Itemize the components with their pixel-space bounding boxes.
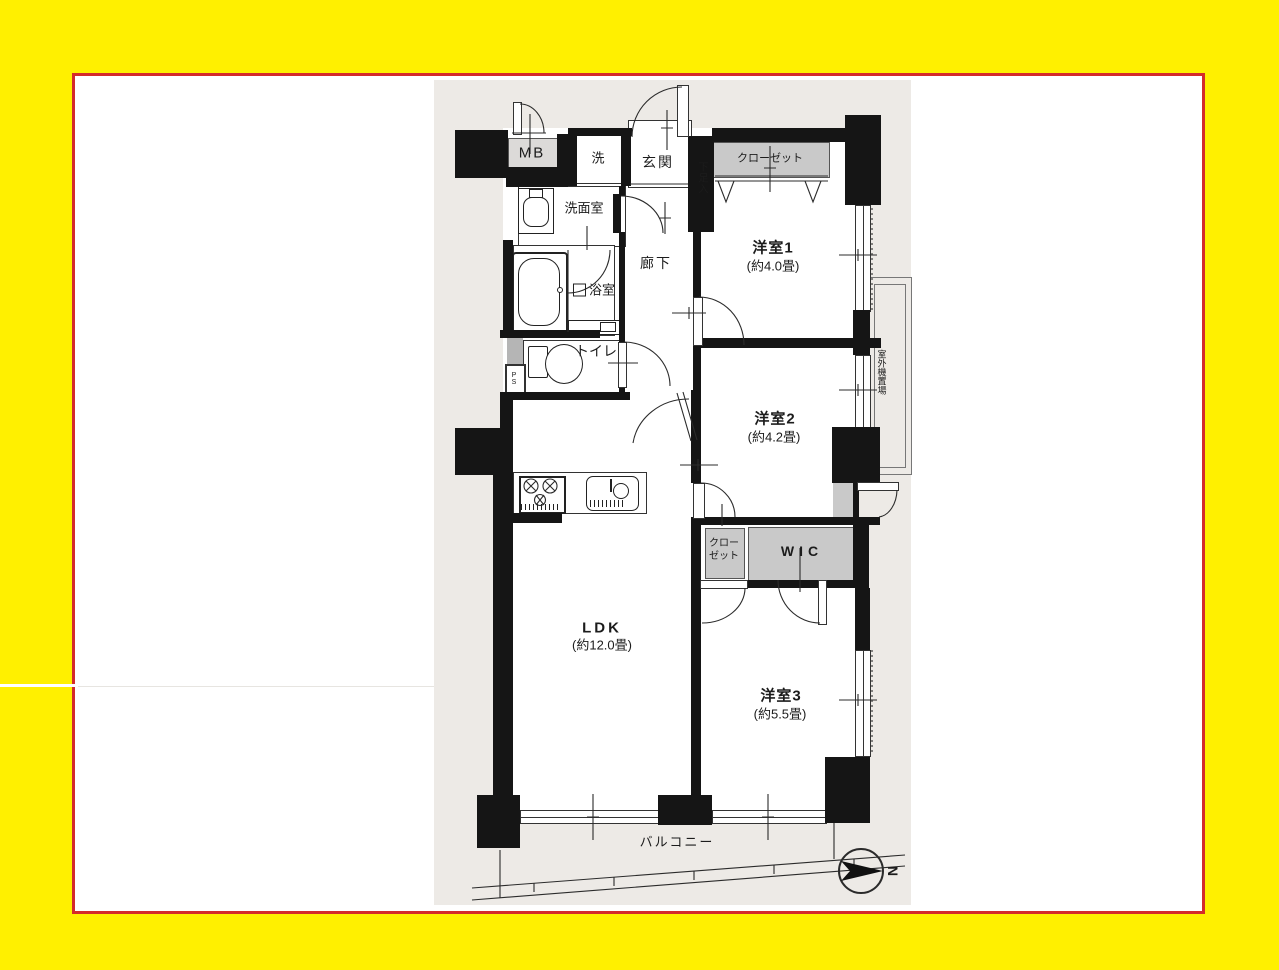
wic-door-leaf xyxy=(818,580,827,625)
toilet-label: トイレ xyxy=(575,344,617,358)
room2-label: 洋室2 xyxy=(754,412,795,427)
wall xyxy=(712,128,846,142)
sink-faucet-stem xyxy=(610,479,612,492)
closet2-label: クロー ゼット xyxy=(709,537,739,563)
wall xyxy=(691,517,701,810)
floor-plan: MB 洗 玄関 下足入 クローゼット 洋室1 (約4.0畳) 洗面室 廊下 浴室… xyxy=(434,80,911,905)
wall xyxy=(693,344,701,392)
wall xyxy=(701,517,880,525)
wall xyxy=(500,392,513,432)
toilet-door-leaf xyxy=(618,342,627,388)
closet2-line2: ゼット xyxy=(709,550,739,563)
wall xyxy=(477,795,520,848)
wall xyxy=(500,330,600,338)
room3-label: 洋室3 xyxy=(760,689,801,704)
page: MB 洗 玄関 下足入 クローゼット 洋室1 (約4.0畳) 洗面室 廊下 浴室… xyxy=(0,0,1279,970)
sink-faucet xyxy=(613,483,629,499)
bathroom-label-text: 浴室 xyxy=(589,284,615,297)
red-frame: MB 洗 玄関 下足入 クローゼット 洋室1 (約4.0畳) 洗面室 廊下 浴室… xyxy=(72,73,1205,914)
wall xyxy=(500,392,630,400)
bathroom-square-icon xyxy=(573,284,586,297)
closet2-line1: クロー xyxy=(709,537,739,550)
stray-line-gray xyxy=(78,686,434,687)
wall xyxy=(493,428,513,810)
ps-label: PS xyxy=(511,372,518,386)
wall xyxy=(745,580,869,588)
mb-door-leaf xyxy=(513,102,522,135)
bathtub-handle xyxy=(557,287,563,293)
entrance-door-leaf xyxy=(677,85,689,137)
wall xyxy=(855,588,870,650)
north-label: N xyxy=(886,866,900,876)
room1-label: 洋室1 xyxy=(752,241,793,256)
window-room3-right xyxy=(855,650,871,757)
washbasin-bowl xyxy=(523,197,549,227)
shoe-box-label: 下足入 xyxy=(696,162,706,195)
wall xyxy=(621,128,631,186)
wall xyxy=(691,390,701,483)
sink-rack xyxy=(590,500,624,507)
wall xyxy=(701,338,881,348)
compass-arrow xyxy=(841,861,883,881)
mb-label: MB xyxy=(519,146,546,161)
wall xyxy=(693,232,701,297)
wall xyxy=(832,427,880,483)
balcony-edge-ticks xyxy=(534,859,854,892)
balcony-access-arc xyxy=(879,490,897,517)
wall xyxy=(845,115,881,205)
wall xyxy=(513,513,562,523)
wall xyxy=(455,428,493,475)
washbasin-tap xyxy=(529,189,543,198)
corridor-label: 廊下 xyxy=(640,256,672,270)
stove-grill xyxy=(521,504,560,510)
washroom-label: 洗面室 xyxy=(564,202,603,215)
balcony-label: バルコニー xyxy=(640,836,715,849)
wall xyxy=(455,130,508,178)
wall xyxy=(557,134,577,186)
window-room2-right xyxy=(855,355,871,429)
room1-door-leaf xyxy=(693,297,703,346)
wall xyxy=(658,795,712,825)
wic-label: WIC xyxy=(781,544,823,558)
window-ldk-balcony xyxy=(520,810,660,824)
room3-door-leaf xyxy=(700,580,748,589)
window-room3-balcony xyxy=(712,810,827,824)
outdoor-unit-label: 室外機置場 xyxy=(877,350,886,395)
wall xyxy=(503,240,513,332)
bathroom-label: 浴室 xyxy=(573,284,615,297)
closet1-label: クローゼット xyxy=(737,154,803,165)
stray-line-white xyxy=(0,684,75,687)
room1-size-label: (約4.0畳) xyxy=(747,260,800,273)
entrance-label: 玄関 xyxy=(642,155,674,169)
bathtub-inner xyxy=(518,258,560,326)
wall xyxy=(853,517,869,588)
bath-counter-item xyxy=(600,322,616,332)
room3-size-label: (約5.5畳) xyxy=(754,708,807,721)
window-room1-right xyxy=(855,205,871,312)
room2-door-leaf xyxy=(693,483,705,519)
ps-gray-box xyxy=(507,338,523,364)
balcony-access-leaf xyxy=(857,482,899,491)
balcony-edge-lines xyxy=(472,855,905,900)
room2-size-label: (約4.2畳) xyxy=(748,431,801,444)
wall xyxy=(825,757,870,823)
compass-circle xyxy=(839,849,883,893)
washroom-door-leaf xyxy=(613,194,621,233)
ldk-size-label: (約12.0畳) xyxy=(572,639,632,652)
room2-gray-box xyxy=(833,483,853,517)
laundry-label: 洗 xyxy=(591,152,604,165)
wall xyxy=(853,310,870,355)
wall xyxy=(619,232,625,344)
ldk-label: LDK xyxy=(582,621,622,636)
